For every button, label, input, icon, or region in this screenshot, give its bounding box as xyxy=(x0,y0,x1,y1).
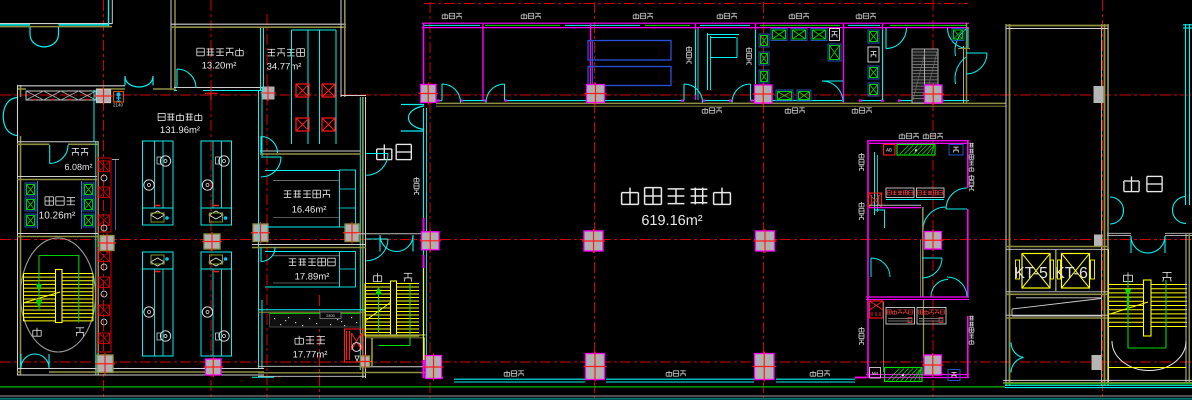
svg-text:13.20m²: 13.20m² xyxy=(202,61,237,72)
svg-text:17.89m²: 17.89m² xyxy=(295,272,330,283)
svg-text:34.77m²: 34.77m² xyxy=(267,62,302,73)
svg-text:KT-5: KT-5 xyxy=(1014,265,1048,282)
svg-text:M4: M4 xyxy=(872,371,879,376)
svg-text:10.26m²: 10.26m² xyxy=(39,211,76,222)
svg-text:2140: 2140 xyxy=(113,103,124,108)
svg-text:KT-6: KT-6 xyxy=(1054,265,1088,282)
svg-text:619.16m²: 619.16m² xyxy=(641,213,702,229)
svg-text:131.96m²: 131.96m² xyxy=(160,125,200,136)
svg-text:6.08m²: 6.08m² xyxy=(64,162,92,172)
svg-text:AB: AB xyxy=(886,148,892,153)
svg-text:16.46m²: 16.46m² xyxy=(292,205,327,216)
svg-text:17.77m²: 17.77m² xyxy=(293,350,328,361)
svg-text:2400: 2400 xyxy=(326,314,334,318)
